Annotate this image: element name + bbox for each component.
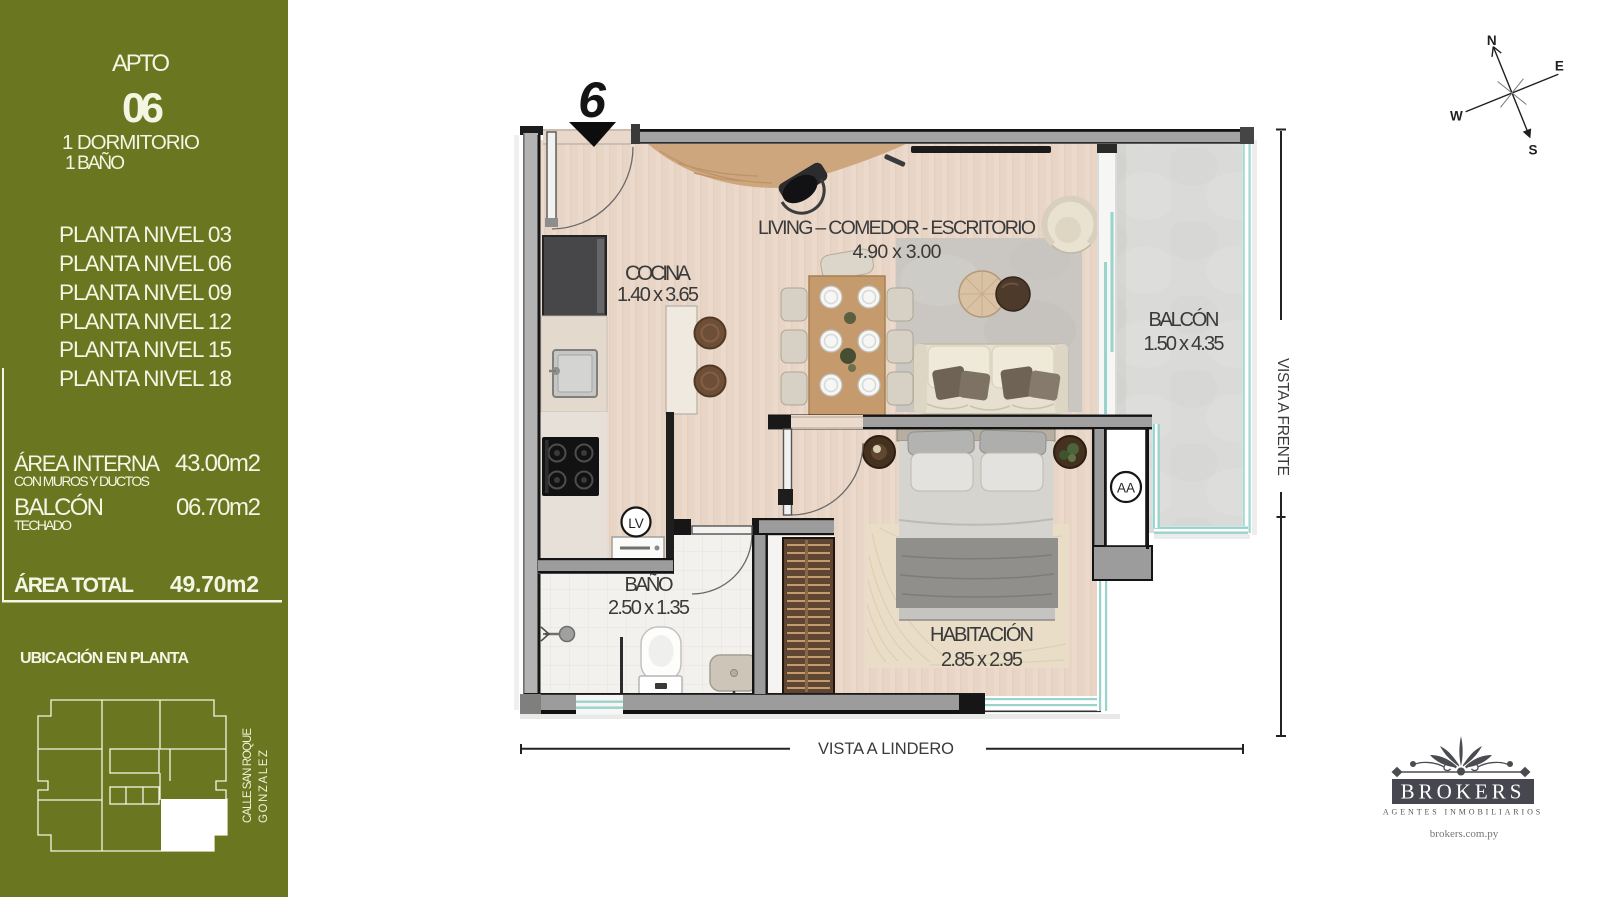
svg-text:CON MUROS Y DUCTOS: CON MUROS Y DUCTOS <box>14 473 150 489</box>
svg-text:TECHADO: TECHADO <box>14 517 72 533</box>
svg-text:AA: AA <box>1117 481 1135 496</box>
svg-text:PLANTA NIVEL 18: PLANTA NIVEL 18 <box>59 366 232 391</box>
svg-text:LV: LV <box>628 516 644 531</box>
svg-text:BALCÓN: BALCÓN <box>1149 308 1220 331</box>
svg-text:6: 6 <box>578 72 607 128</box>
svg-text:PLANTA NIVEL 03: PLANTA NIVEL 03 <box>59 222 232 247</box>
svg-text:4.90 x 3.00: 4.90 x 3.00 <box>853 241 942 263</box>
svg-text:ÁREA TOTAL: ÁREA TOTAL <box>14 574 134 597</box>
svg-text:W: W <box>1450 108 1463 123</box>
svg-text:BAÑO: BAÑO <box>625 572 674 596</box>
svg-text:2.50 x 1.35: 2.50 x 1.35 <box>608 597 690 619</box>
svg-text:N: N <box>1487 33 1497 48</box>
svg-text:1.50 x 4.35: 1.50 x 4.35 <box>1144 333 1225 355</box>
svg-text:brokers.com.py: brokers.com.py <box>1430 828 1499 840</box>
svg-text:49.70m2: 49.70m2 <box>170 571 259 597</box>
svg-text:PLANTA NIVEL 06: PLANTA NIVEL 06 <box>59 251 232 276</box>
svg-text:COCINA: COCINA <box>625 262 691 285</box>
svg-text:PLANTA NIVEL 12: PLANTA NIVEL 12 <box>59 309 232 334</box>
svg-text:BROKERS: BROKERS <box>1401 780 1526 804</box>
svg-text:E: E <box>1555 58 1564 73</box>
svg-text:2.85 x 2.95: 2.85 x 2.95 <box>941 649 1023 671</box>
svg-text:06.70m2: 06.70m2 <box>176 494 261 521</box>
svg-text:VISTA A FRENTE: VISTA A FRENTE <box>1274 358 1291 476</box>
svg-text:LIVING – COMEDOR - ESCRITORIO: LIVING – COMEDOR - ESCRITORIO <box>758 217 1036 239</box>
svg-text:1 BAÑO: 1 BAÑO <box>65 152 125 174</box>
svg-text:VISTA A LINDERO: VISTA A LINDERO <box>818 740 954 758</box>
svg-text:PLANTA NIVEL 15: PLANTA NIVEL 15 <box>59 337 232 362</box>
svg-text:HABITACIÓN: HABITACIÓN <box>930 623 1034 646</box>
svg-text:UBICACIÓN EN PLANTA: UBICACIÓN EN PLANTA <box>20 648 189 667</box>
svg-text:PLANTA NIVEL 09: PLANTA NIVEL 09 <box>59 280 232 305</box>
svg-text:CALLE SAN ROQUE: CALLE SAN ROQUE <box>242 728 254 823</box>
svg-text:1.40 x 3.65: 1.40 x 3.65 <box>617 284 699 306</box>
svg-text:APTO: APTO <box>112 50 170 77</box>
svg-text:1 DORMITORIO: 1 DORMITORIO <box>62 131 200 154</box>
svg-text:06: 06 <box>122 84 164 131</box>
svg-text:GONZALEZ: GONZALEZ <box>258 750 270 823</box>
svg-text:AGENTES INMOBILIARIOS: AGENTES INMOBILIARIOS <box>1383 808 1543 817</box>
svg-text:43.00m2: 43.00m2 <box>175 450 261 477</box>
svg-text:S: S <box>1528 142 1537 157</box>
